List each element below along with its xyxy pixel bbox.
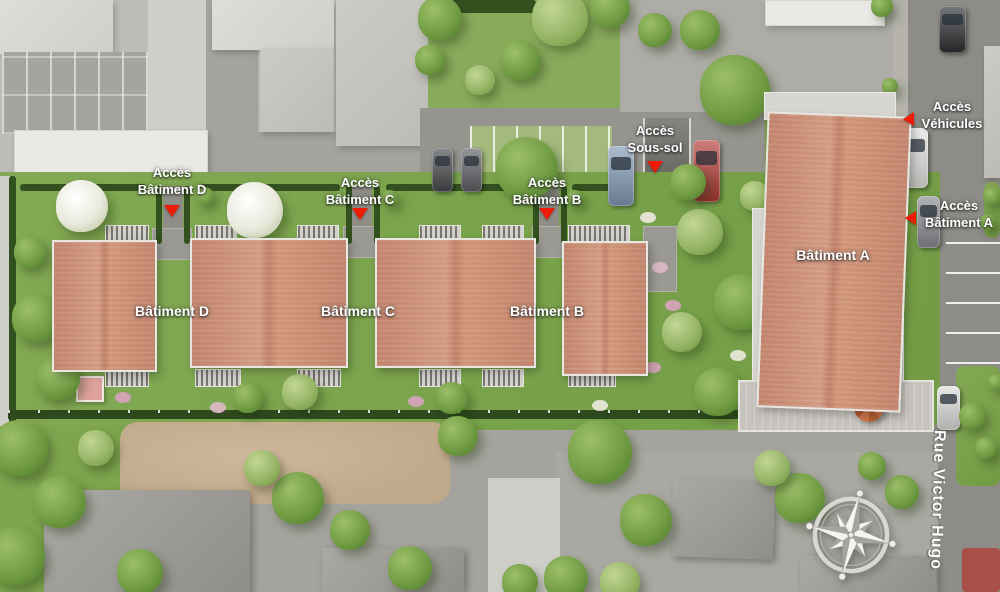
- garden-walkway: [643, 226, 677, 292]
- tree: [388, 546, 432, 590]
- batiment-b-label: Bâtiment B: [510, 303, 584, 319]
- access-vehicules-label: Accès Véhicules: [922, 98, 983, 132]
- street-parking-bays: [946, 240, 1000, 364]
- tree: [568, 420, 632, 484]
- balcony-strip: [569, 226, 629, 242]
- tree: [500, 40, 540, 80]
- existing-building: [765, 0, 885, 26]
- balcony-strip: [483, 370, 523, 386]
- tree: [0, 420, 48, 476]
- access-sous-sol-label: Accès Sous-sol: [628, 122, 683, 156]
- parked-car: [939, 6, 966, 53]
- tree: [677, 209, 723, 255]
- car-windshield: [464, 156, 480, 166]
- access-batiment-c-marker-icon: [352, 208, 368, 220]
- tree: [638, 13, 672, 47]
- compass-rose-icon: [803, 487, 899, 583]
- tree: [438, 416, 478, 456]
- tree: [754, 450, 790, 486]
- tree: [233, 383, 263, 413]
- access-vehicules-marker-icon: [903, 112, 914, 126]
- tree: [0, 527, 45, 585]
- flower-bed: [652, 262, 668, 273]
- balcony-strip: [106, 370, 148, 386]
- flower-bed: [640, 212, 656, 223]
- tree: [14, 236, 46, 268]
- access-label-line: Accès: [925, 197, 993, 214]
- flower-bed: [210, 402, 226, 413]
- garden-shed: [76, 376, 104, 402]
- batiment-c-label: Bâtiment C: [321, 303, 395, 319]
- tree: [694, 368, 742, 416]
- tree: [78, 430, 114, 466]
- tree: [858, 452, 886, 480]
- flower-bed: [408, 396, 424, 407]
- car-windshield: [696, 151, 717, 165]
- existing-building: [212, 0, 334, 50]
- car-windshield: [942, 14, 963, 24]
- car-windshield: [435, 156, 451, 166]
- access-batiment-d-marker-icon: [164, 205, 180, 217]
- access-label-line: Bâtiment C: [326, 191, 395, 208]
- access-batiment-d-label: Accès Bâtiment D: [138, 164, 207, 198]
- tree: [282, 374, 318, 410]
- access-label-line: Sous-sol: [628, 139, 683, 156]
- access-label-line: Bâtiment A: [925, 214, 993, 231]
- access-label-line: Véhicules: [922, 115, 983, 132]
- flower-bed: [730, 350, 746, 361]
- batiment-d-label: Bâtiment D: [135, 303, 209, 319]
- access-batiment-a-label: Accès Bâtiment A: [925, 197, 993, 231]
- batiment-a-label: Bâtiment A: [796, 247, 869, 263]
- tree: [330, 510, 370, 550]
- parked-car: [461, 148, 482, 192]
- car-windshield: [940, 394, 958, 404]
- access-batiment-b-marker-icon: [539, 208, 555, 220]
- access-label-line: Bâtiment B: [513, 191, 582, 208]
- tree: [680, 10, 720, 50]
- parked-car: [937, 386, 960, 430]
- flower-bed: [665, 300, 681, 311]
- car-windshield: [611, 157, 631, 170]
- tree: [670, 164, 706, 200]
- pavement-light: [148, 0, 206, 134]
- hedge: [9, 176, 16, 424]
- tree: [975, 437, 997, 459]
- access-label-line: Accès: [922, 98, 983, 115]
- existing-house: [671, 478, 776, 560]
- flower-bed: [115, 392, 131, 403]
- tree: [227, 182, 283, 238]
- tree: [436, 382, 468, 414]
- access-sous-sol-marker-icon: [647, 161, 663, 173]
- parked-car: [432, 148, 453, 192]
- parking-lot: [2, 52, 148, 134]
- street-name-label: Rue Victor Hugo: [926, 430, 948, 570]
- site-plan-aerial-view: Bâtiment D Bâtiment C Bâtiment B Bâtimen…: [0, 0, 1000, 592]
- tree: [244, 450, 280, 486]
- tree: [662, 312, 702, 352]
- flower-bed: [592, 400, 608, 411]
- access-label-line: Bâtiment D: [138, 181, 207, 198]
- tree: [465, 65, 495, 95]
- existing-building: [0, 0, 113, 54]
- access-batiment-b-label: Accès Bâtiment B: [513, 174, 582, 208]
- access-batiment-c-label: Accès Bâtiment C: [326, 174, 395, 208]
- tree: [34, 476, 86, 528]
- access-label-line: Accès: [513, 174, 582, 191]
- tree: [117, 549, 163, 592]
- balcony-strip: [196, 370, 240, 386]
- tree: [959, 403, 985, 429]
- access-label-line: Accès: [138, 164, 207, 181]
- access-label-line: Accès: [326, 174, 395, 191]
- existing-building: [260, 48, 334, 132]
- access-batiment-a-marker-icon: [905, 211, 916, 225]
- tree: [620, 494, 672, 546]
- tree: [56, 180, 108, 232]
- tree: [700, 55, 770, 125]
- access-label-line: Accès: [628, 122, 683, 139]
- tree: [415, 45, 445, 75]
- existing-building: [984, 46, 1000, 178]
- tree: [988, 374, 1000, 390]
- existing-building: [336, 0, 430, 146]
- red-pavement: [962, 548, 1000, 592]
- tree: [272, 472, 324, 524]
